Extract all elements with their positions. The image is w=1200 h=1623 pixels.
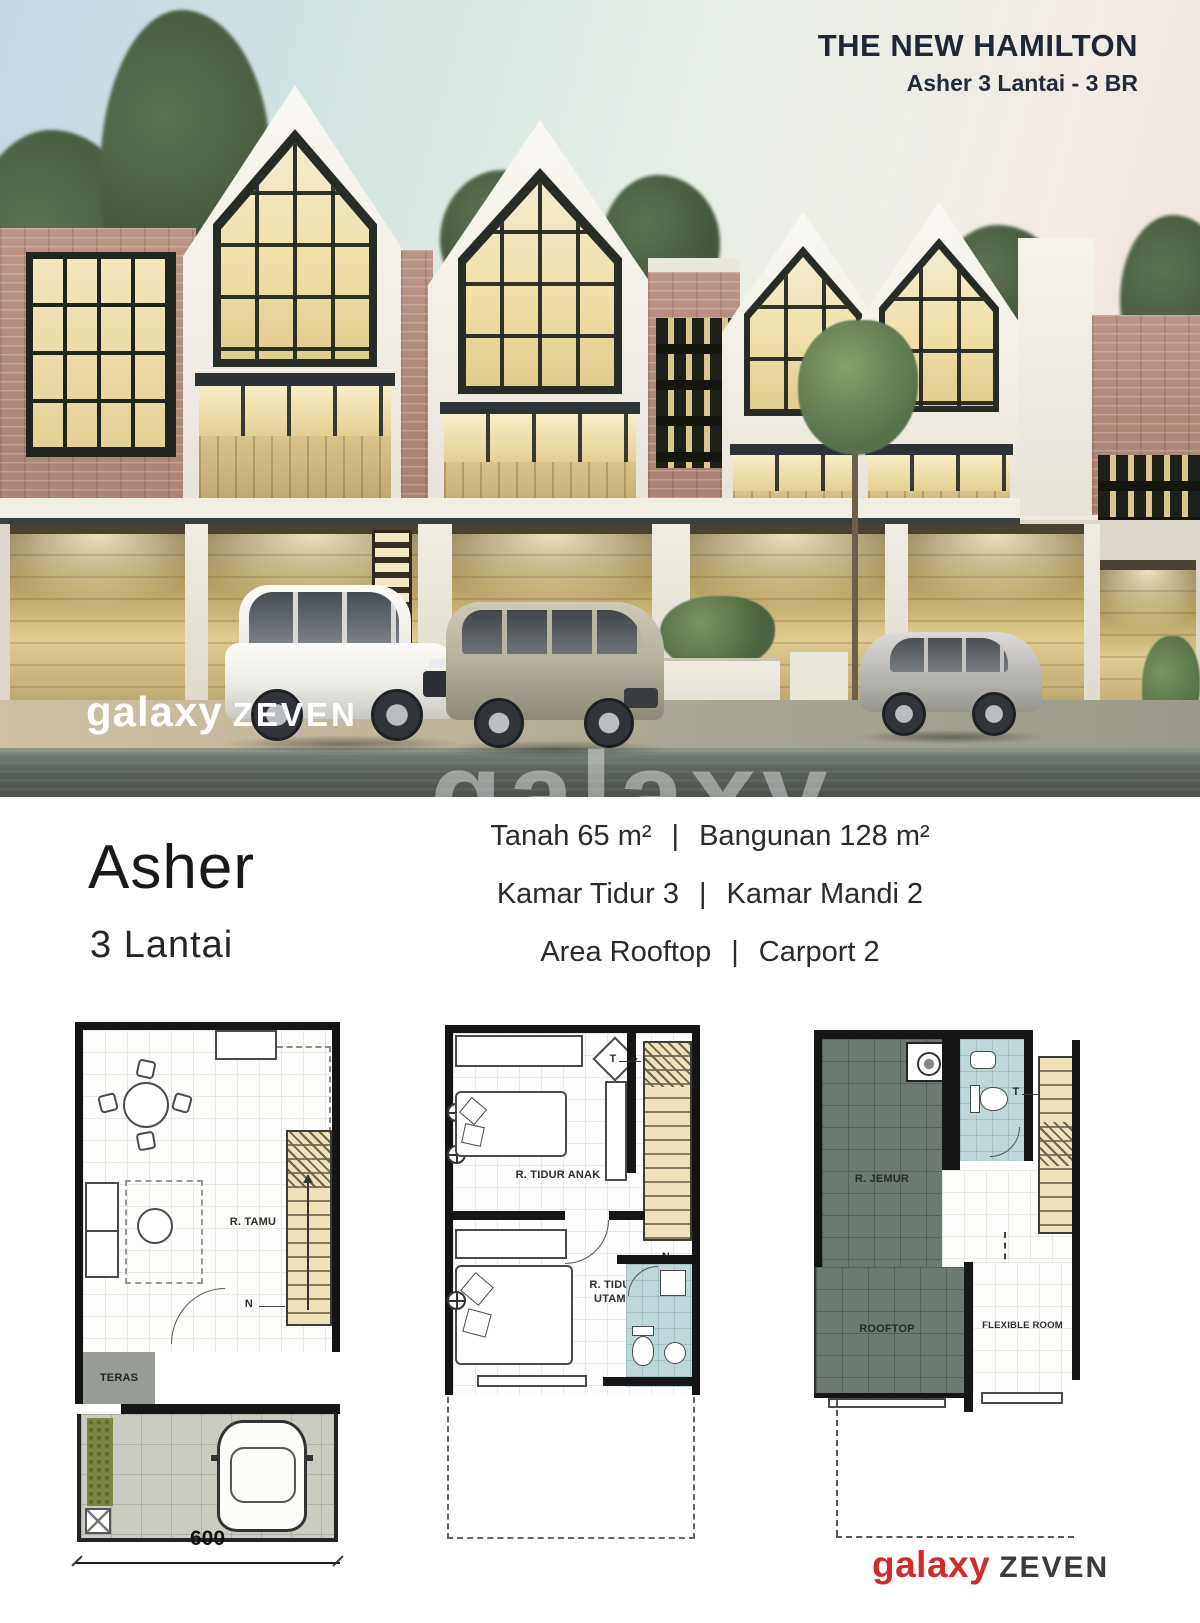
toilet [980, 1087, 1008, 1111]
pillow [462, 1308, 491, 1337]
north-tick [259, 1306, 285, 1307]
door-swing-arc [171, 1288, 225, 1344]
toilet-tank [632, 1326, 654, 1336]
floorplan-second-floor: R. TIDUR ANAK T R. TIDUR UTAMA N [445, 1025, 700, 1545]
teras-porch: TERAS [75, 1352, 155, 1404]
car-windows [890, 638, 1008, 672]
wall-stub [964, 1392, 973, 1412]
stair-marker: T [605, 1053, 621, 1067]
stair-marker-tick [619, 1061, 641, 1062]
lit-window-glass [33, 259, 169, 450]
north-marker: N [239, 1298, 259, 1312]
exterior-wall [603, 1377, 692, 1386]
brand-logo-galaxy: galaxy [872, 1544, 990, 1586]
living-room: R. TAMU N [75, 1022, 340, 1352]
ledge [828, 1398, 946, 1408]
interior-wall [1024, 1030, 1033, 1161]
rooftop-terrace: ROOFTOP [814, 1267, 964, 1393]
room-label: ROOFTOP [832, 1323, 942, 1337]
stair-marker: T [1008, 1086, 1024, 1100]
spec-separator: | [699, 878, 707, 911]
car-mirror [304, 1455, 313, 1461]
project-title: THE NEW HAMILTON [678, 28, 1138, 64]
floorplan-ground-floor: R. TAMU N TERAS 600 [75, 1022, 340, 1587]
wardrobe [455, 1035, 583, 1067]
toilet-tank [970, 1085, 980, 1113]
project-subtitle: Asher 3 Lantai - 3 BR [678, 70, 1138, 97]
dining-table [123, 1082, 169, 1128]
watermark-brand-text: galaxy [86, 688, 223, 736]
car-windows [249, 592, 399, 644]
wheel [882, 692, 926, 736]
spec-value: Area Rooftop [540, 936, 711, 968]
product-floors: 3 Lantai [90, 924, 233, 967]
dimension-label: 600 [75, 1527, 340, 1551]
exterior-wall [1072, 1040, 1080, 1380]
brand-logo: galaxy ZEVEN [872, 1544, 1109, 1586]
watermark-center-text: galaxy [430, 726, 833, 797]
single-bed [455, 1091, 567, 1157]
spec-separator: | [731, 936, 739, 969]
interior-wall [609, 1211, 645, 1220]
car-shadow [219, 735, 465, 753]
window-frame [26, 252, 176, 457]
bathroom [960, 1039, 1024, 1161]
building-render-photo: galaxy ZEVEN galaxy THE NEW HAMILTON Ash… [0, 0, 1200, 797]
wardrobe [455, 1229, 567, 1259]
fascia-band [0, 498, 1020, 524]
chair [97, 1092, 119, 1114]
sofa-cushion-line [87, 1230, 117, 1232]
chair [135, 1058, 156, 1079]
chair [171, 1092, 193, 1114]
flexible-room: FLEXIBLE ROOM [973, 1262, 1072, 1392]
car-shadow [855, 730, 1047, 744]
interior-wall [964, 1262, 973, 1392]
dashed-line [277, 1046, 331, 1048]
spec-value: Tanah 65 m² [490, 820, 651, 852]
brand-logo-zeven: ZEVEN [999, 1551, 1109, 1585]
wheel [371, 689, 423, 741]
wood-panel [199, 436, 391, 498]
garden-strip [87, 1418, 113, 1506]
floor-beam [440, 402, 640, 414]
bathroom-wall [617, 1255, 692, 1264]
floorplan-rooftop: R. JEMUR T ROOFTOP FLEXIBLE ROOM [808, 1000, 1080, 1545]
column-marker-icon [447, 1291, 466, 1310]
spec-row: Kamar Tidur 3|Kamar Mandi 2 [420, 878, 1000, 911]
spec-value: Kamar Mandi 2 [727, 878, 924, 910]
door-swing-arc [990, 1127, 1020, 1157]
dashed-boundary [836, 1400, 838, 1536]
door-swing-arc [628, 1266, 658, 1296]
pilaster-cabinet [605, 1081, 627, 1181]
exterior-wall [814, 1030, 1026, 1039]
spec-row: Area Rooftop|Carport 2 [420, 936, 1000, 969]
car-roof-glass [230, 1447, 296, 1503]
dashed-boundary [836, 1536, 1074, 1538]
bathroom [626, 1264, 692, 1387]
spec-row: Tanah 65 m²|Bangunan 128 m² [420, 820, 1000, 853]
kitchen-counter [215, 1030, 277, 1060]
staircase [643, 1041, 692, 1241]
teras-label: TERAS [83, 1352, 155, 1404]
floor-beam [195, 373, 395, 386]
sink [664, 1342, 686, 1364]
spec-value: Carport 2 [759, 936, 880, 968]
stair-marker-tick [1022, 1094, 1040, 1095]
dimension-tick [332, 1555, 343, 1566]
car-grille [624, 688, 658, 708]
spec-value: Bangunan 128 m² [699, 820, 930, 852]
lit-window-band [444, 414, 636, 462]
room-label: FLEXIBLE ROOM [973, 1320, 1072, 1332]
wheel [972, 692, 1016, 736]
car-top-view [217, 1420, 307, 1532]
staircase [286, 1130, 332, 1326]
toilet [632, 1336, 654, 1366]
interior-wall [942, 1030, 960, 1170]
white-pier [1018, 238, 1094, 516]
interior-wall [453, 1211, 565, 1220]
stair-arrow-head [303, 1174, 313, 1183]
door-swing-arc [565, 1220, 609, 1264]
dark-window-grid [656, 318, 732, 468]
void-open-below [447, 1397, 695, 1539]
lit-window-band [199, 386, 391, 436]
room-label: R. JEMUR [828, 1173, 936, 1187]
spec-list: Tanah 65 m²|Bangunan 128 m² Kamar Tidur … [420, 820, 1000, 969]
dimension-tick [71, 1555, 82, 1566]
drying-area: R. JEMUR [814, 1039, 942, 1267]
sink [970, 1051, 996, 1069]
interior-wall [627, 1033, 636, 1173]
title-block: THE NEW HAMILTON Asher 3 Lantai - 3 BR [678, 28, 1138, 97]
carport [77, 1414, 338, 1542]
coffee-table [137, 1208, 173, 1244]
product-name: Asher [88, 832, 255, 903]
stair-arrow-line [307, 1180, 309, 1310]
double-bed [455, 1265, 573, 1365]
pillow [461, 1123, 485, 1147]
car-mirror [211, 1455, 220, 1461]
lit-window-band [868, 455, 1010, 491]
watermark-suffix-text: ZEVEN [233, 696, 358, 734]
window-ledge [981, 1392, 1063, 1404]
watermark-logo: galaxy ZEVEN [86, 688, 358, 736]
sofa [85, 1182, 119, 1278]
pillow [459, 1097, 487, 1125]
washer-drum [917, 1052, 941, 1076]
car-silver-hatchback [860, 616, 1042, 744]
carport-lintel-wall [121, 1404, 340, 1414]
balcony-window-ledge [477, 1375, 587, 1387]
stair-cut-hatch [645, 1043, 690, 1087]
dimension-line [75, 1562, 340, 1564]
chair [136, 1131, 157, 1152]
bedroom-level: R. TIDUR ANAK T R. TIDUR UTAMA N [445, 1025, 700, 1395]
spec-value: Kamar Tidur 3 [497, 878, 679, 910]
shower [660, 1270, 686, 1296]
floor-beam [865, 444, 1013, 455]
car-windows [462, 610, 642, 654]
room-label: R. TIDUR ANAK [493, 1169, 623, 1183]
spec-separator: | [672, 820, 680, 853]
